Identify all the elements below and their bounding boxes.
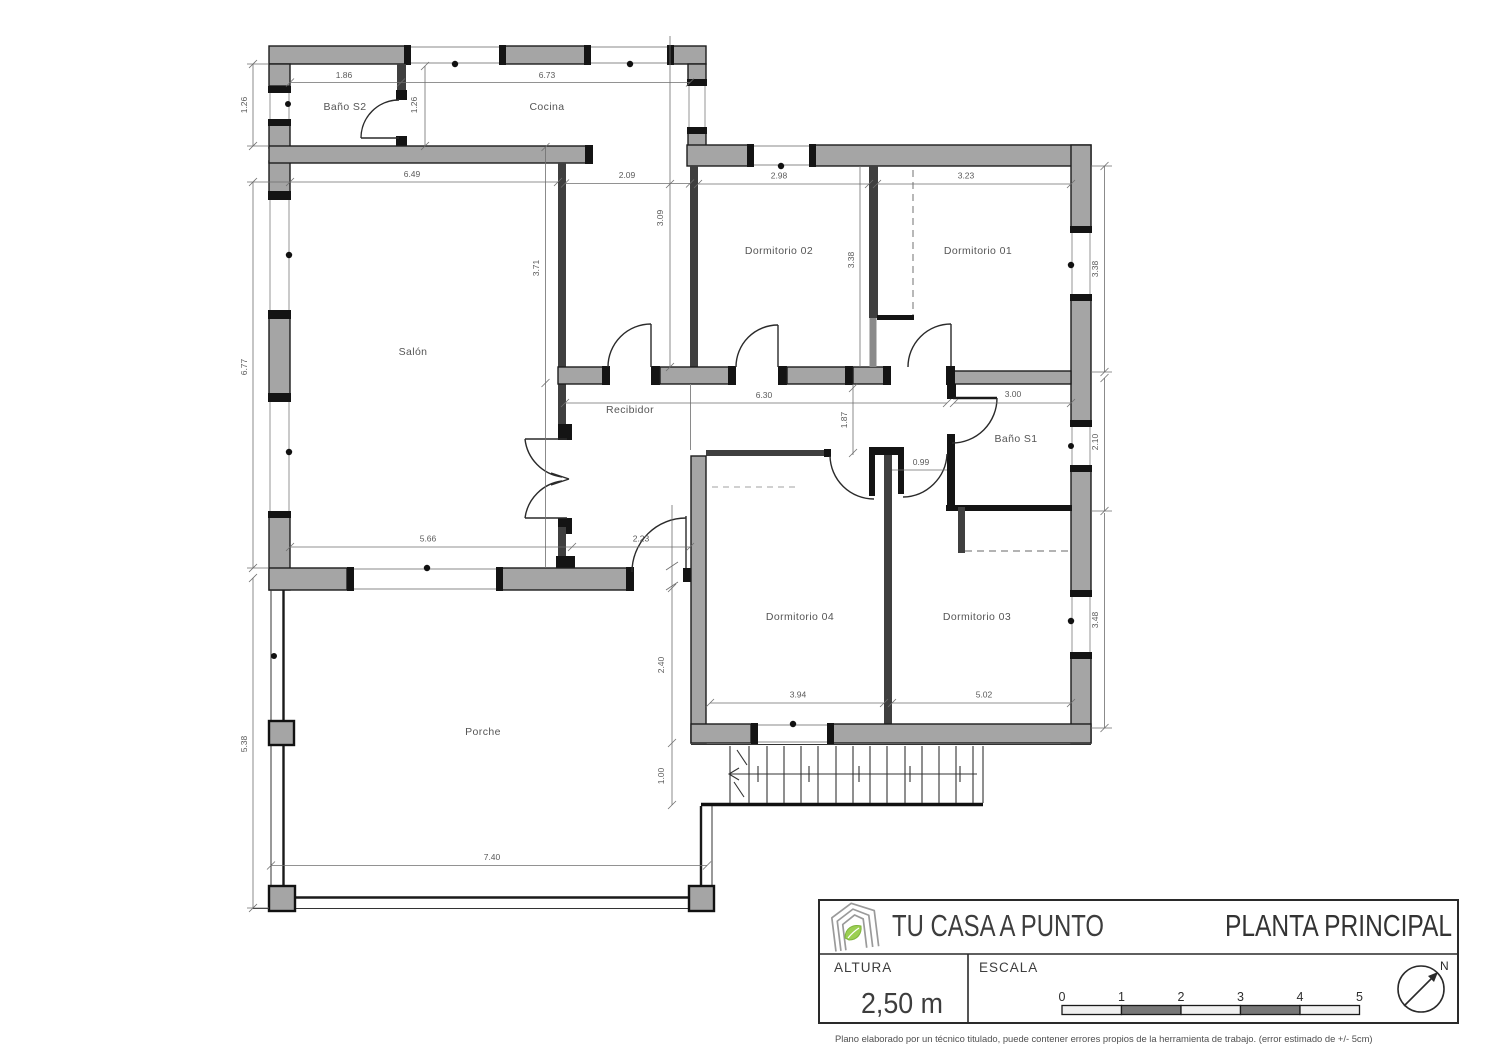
svg-text:2: 2 bbox=[1178, 990, 1185, 1004]
svg-text:6.77: 6.77 bbox=[239, 358, 249, 375]
svg-text:0: 0 bbox=[1059, 990, 1066, 1004]
svg-text:3: 3 bbox=[1237, 990, 1244, 1004]
svg-text:3.71: 3.71 bbox=[531, 259, 541, 276]
svg-text:N: N bbox=[1440, 959, 1449, 973]
svg-text:PLANTA PRINCIPAL: PLANTA PRINCIPAL bbox=[1225, 908, 1452, 943]
svg-text:1: 1 bbox=[1118, 990, 1125, 1004]
svg-text:3.38: 3.38 bbox=[846, 251, 856, 268]
svg-text:Baño S1: Baño S1 bbox=[994, 433, 1037, 445]
svg-text:5.66: 5.66 bbox=[420, 534, 437, 544]
svg-text:Salón: Salón bbox=[399, 346, 428, 358]
svg-text:2.98: 2.98 bbox=[771, 171, 788, 181]
svg-text:Dormitorio 03: Dormitorio 03 bbox=[943, 611, 1011, 623]
svg-text:3.48: 3.48 bbox=[1090, 611, 1100, 628]
svg-text:6.49: 6.49 bbox=[404, 169, 421, 179]
svg-text:Baño S2: Baño S2 bbox=[323, 101, 366, 113]
svg-text:ESCALA: ESCALA bbox=[979, 960, 1038, 975]
svg-text:ALTURA: ALTURA bbox=[834, 960, 892, 975]
svg-text:2.09: 2.09 bbox=[619, 170, 636, 180]
svg-text:1.26: 1.26 bbox=[239, 96, 249, 113]
svg-text:Porche: Porche bbox=[465, 726, 501, 738]
svg-text:6.73: 6.73 bbox=[539, 70, 556, 80]
svg-text:Plano elaborado por un técnico: Plano elaborado por un técnico titulado,… bbox=[835, 1033, 1373, 1044]
svg-text:3.23: 3.23 bbox=[958, 171, 975, 181]
svg-text:3.38: 3.38 bbox=[1090, 260, 1100, 277]
svg-text:5: 5 bbox=[1356, 990, 1363, 1004]
svg-text:2,50 m: 2,50 m bbox=[861, 988, 943, 1020]
svg-text:2.40: 2.40 bbox=[656, 656, 666, 673]
svg-text:3.09: 3.09 bbox=[655, 209, 665, 226]
svg-text:1.87: 1.87 bbox=[839, 411, 849, 428]
svg-text:Dormitorio 04: Dormitorio 04 bbox=[766, 611, 834, 623]
svg-text:Recibidor: Recibidor bbox=[606, 404, 654, 416]
svg-text:1.00: 1.00 bbox=[656, 767, 666, 784]
svg-text:3.94: 3.94 bbox=[790, 690, 807, 700]
svg-text:1.26: 1.26 bbox=[409, 96, 419, 113]
svg-text:2.23: 2.23 bbox=[633, 534, 650, 544]
svg-text:5.38: 5.38 bbox=[239, 735, 249, 752]
svg-text:Cocina: Cocina bbox=[529, 101, 564, 113]
svg-text:Dormitorio 01: Dormitorio 01 bbox=[944, 245, 1012, 257]
svg-text:Dormitorio 02: Dormitorio 02 bbox=[745, 245, 813, 257]
svg-text:0.99: 0.99 bbox=[913, 457, 930, 467]
svg-text:2.10: 2.10 bbox=[1090, 433, 1100, 450]
svg-text:1.86: 1.86 bbox=[336, 70, 353, 80]
svg-text:4: 4 bbox=[1297, 990, 1304, 1004]
svg-text:6.30: 6.30 bbox=[756, 390, 773, 400]
svg-text:5.02: 5.02 bbox=[976, 690, 993, 700]
svg-text:3.00: 3.00 bbox=[1005, 389, 1022, 399]
svg-text:7.40: 7.40 bbox=[484, 852, 501, 862]
svg-text:TU CASA A PUNTO: TU CASA A PUNTO bbox=[892, 908, 1104, 943]
